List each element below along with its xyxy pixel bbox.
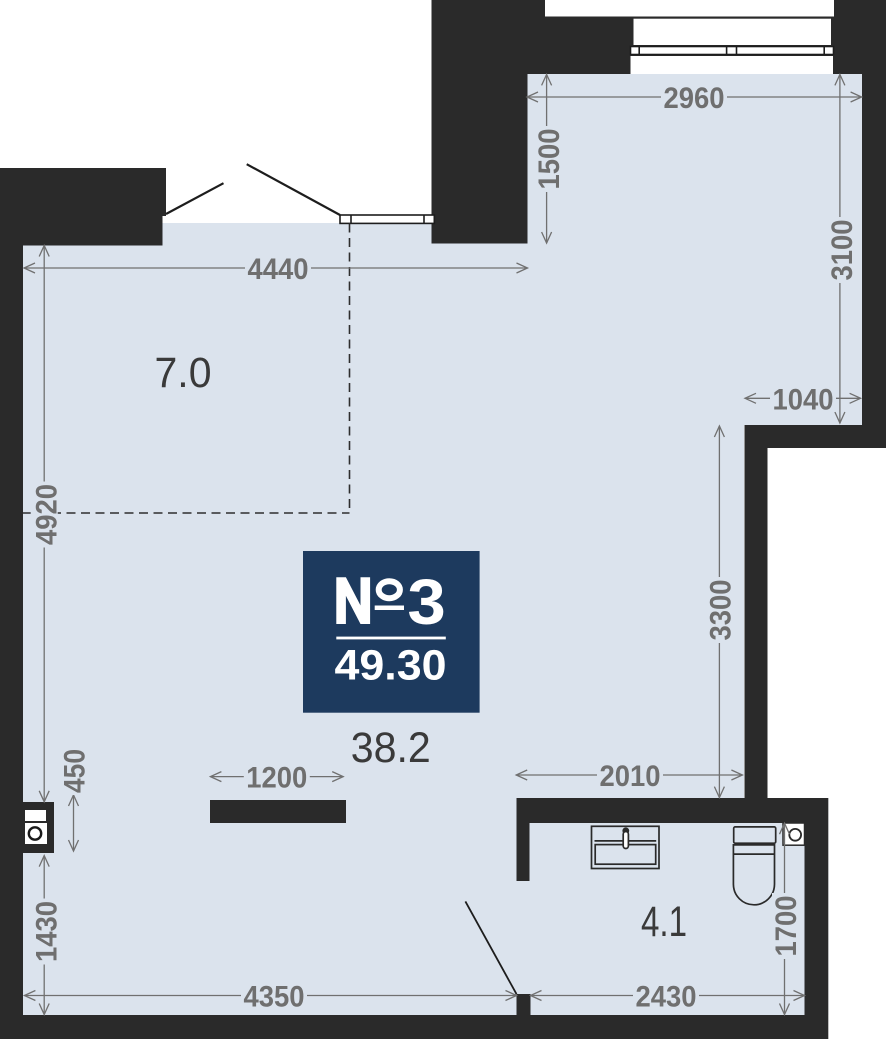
svg-text:4.1: 4.1	[641, 898, 687, 946]
svg-text:2010: 2010	[600, 760, 661, 793]
svg-text:1040: 1040	[773, 383, 834, 416]
svg-text:1500: 1500	[533, 129, 566, 190]
svg-text:1200: 1200	[246, 762, 307, 795]
svg-text:4350: 4350	[244, 981, 305, 1014]
svg-text:450: 450	[59, 749, 92, 793]
svg-text:38.2: 38.2	[351, 724, 431, 772]
svg-text:7.0: 7.0	[155, 349, 212, 397]
svg-text:3: 3	[407, 566, 445, 638]
svg-text:2960: 2960	[664, 82, 725, 115]
svg-text:4920: 4920	[31, 484, 64, 545]
svg-text:49.30: 49.30	[335, 643, 447, 690]
svg-text:2430: 2430	[636, 981, 697, 1014]
svg-text:4440: 4440	[248, 253, 309, 286]
svg-text:3300: 3300	[705, 580, 738, 641]
svg-text:3100: 3100	[826, 220, 859, 281]
svg-text:1430: 1430	[31, 901, 64, 962]
svg-text:1700: 1700	[770, 896, 803, 957]
